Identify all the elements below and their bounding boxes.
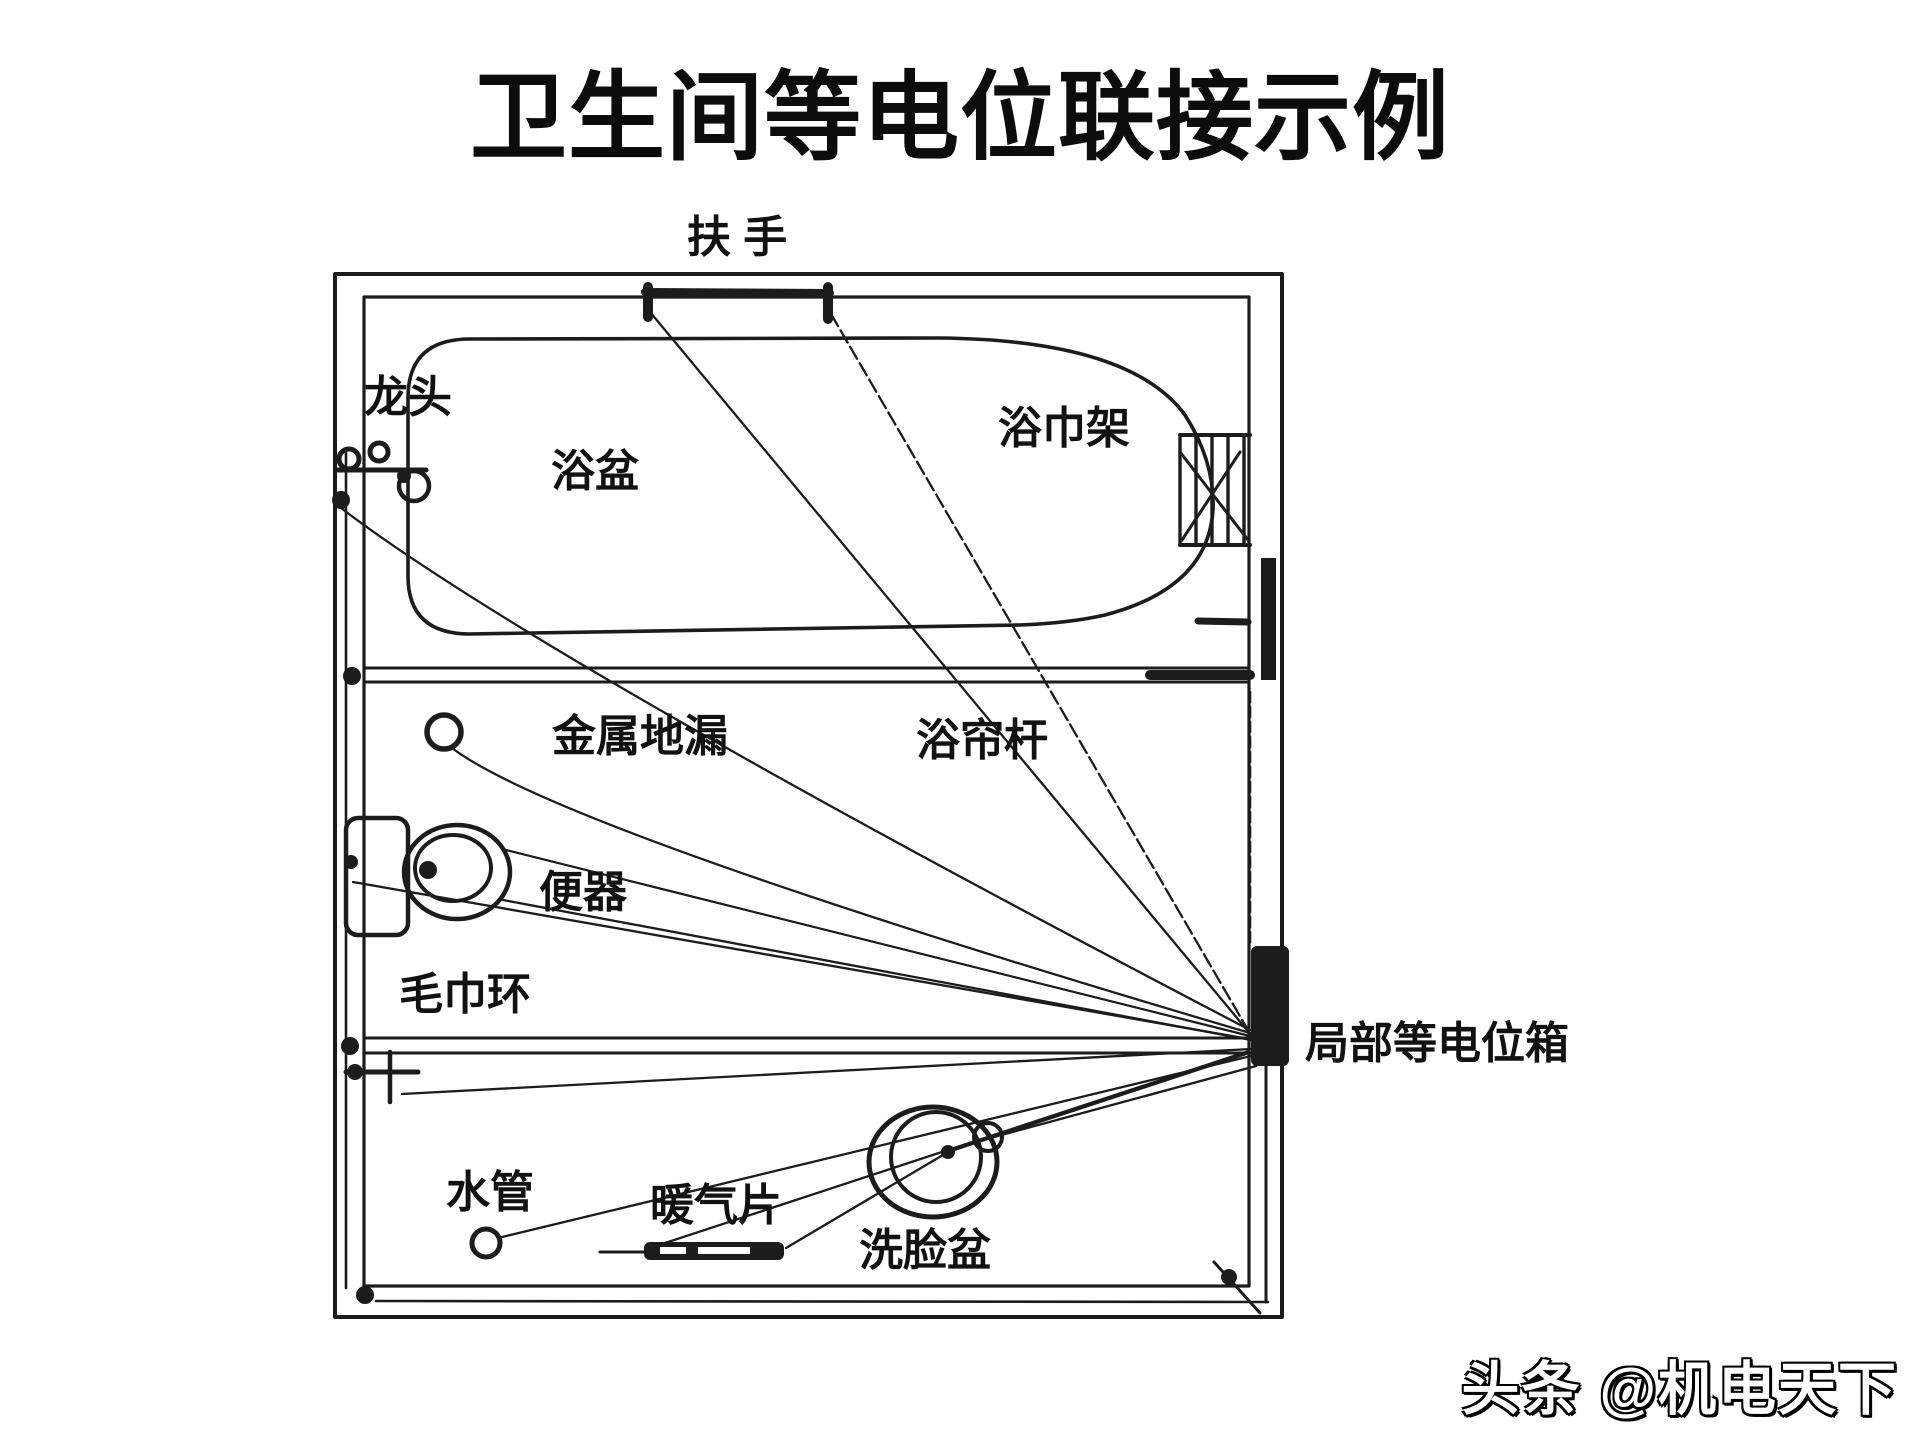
radiator-slot-1 xyxy=(660,1247,686,1254)
toilet-tank xyxy=(346,818,408,935)
towel-rack-braces xyxy=(1180,452,1248,540)
conductor-washbasin xyxy=(786,1052,1252,1248)
water-pipe-circle xyxy=(472,1229,500,1257)
toilet-bond-dot xyxy=(419,861,437,879)
label-towel-rack: 浴巾架 xyxy=(998,404,1130,453)
equipotential-box xyxy=(1251,946,1289,1066)
handrail xyxy=(645,287,830,319)
conductor-bath-faucet xyxy=(341,508,1250,1030)
radiator-slot-2 xyxy=(698,1247,750,1254)
faucet-handle-left xyxy=(339,449,359,469)
label-handrail: 扶 手 xyxy=(687,213,787,262)
label-metal-floor-drain: 金属地漏 xyxy=(551,712,728,761)
label-radiator: 暖气片 xyxy=(650,1181,782,1230)
faucet-handle-right xyxy=(370,443,388,461)
slide: 卫生间等电位联接示例 xyxy=(0,0,1920,1440)
washbasin xyxy=(869,1107,1002,1217)
floor-corner-junction xyxy=(356,1286,374,1304)
label-bathtub: 浴盆 xyxy=(551,447,639,496)
floor-drain xyxy=(427,715,461,749)
bathtub-outline xyxy=(408,338,1213,634)
watermark: 头条 @机电天下 xyxy=(1461,1342,1898,1426)
bathtub xyxy=(408,338,1248,634)
label-towel-ring: 毛巾环 xyxy=(399,970,531,1019)
bathroom-bonding-diagram: 扶 手 龙头 浴盆 浴巾架 金属地漏 浴帘杆 便器 毛巾环 局部等电位箱 水管 … xyxy=(0,0,1920,1440)
floor-edge-line xyxy=(376,1301,1268,1302)
label-faucet: 龙头 xyxy=(364,373,452,422)
lower-divider-junction xyxy=(341,1037,359,1055)
tap-wall-junction xyxy=(347,1064,363,1080)
corner-junction-dot xyxy=(1221,1269,1237,1285)
label-local-equipotential-box: 局部等电位箱 xyxy=(1305,1019,1569,1068)
room-walls xyxy=(335,274,1282,1317)
towel-rack xyxy=(1180,435,1276,680)
toilet xyxy=(344,818,510,935)
label-water-pipe: 水管 xyxy=(446,1168,534,1217)
wall-bond-bar xyxy=(1261,558,1276,680)
conductor-washbasin-tap xyxy=(994,1066,1256,1137)
bathtub-wall-connector xyxy=(1198,621,1248,622)
handrail-bar xyxy=(645,292,830,293)
label-washbasin: 洗脸盆 xyxy=(859,1225,991,1275)
label-shower-curtain-rod: 浴帘杆 xyxy=(916,716,1048,765)
label-toilet: 便器 xyxy=(539,868,628,917)
floor-drain-circle xyxy=(427,715,461,749)
faucet-spout-dot xyxy=(397,469,411,483)
radiator xyxy=(600,1242,784,1260)
outer-wall xyxy=(335,274,1282,1317)
